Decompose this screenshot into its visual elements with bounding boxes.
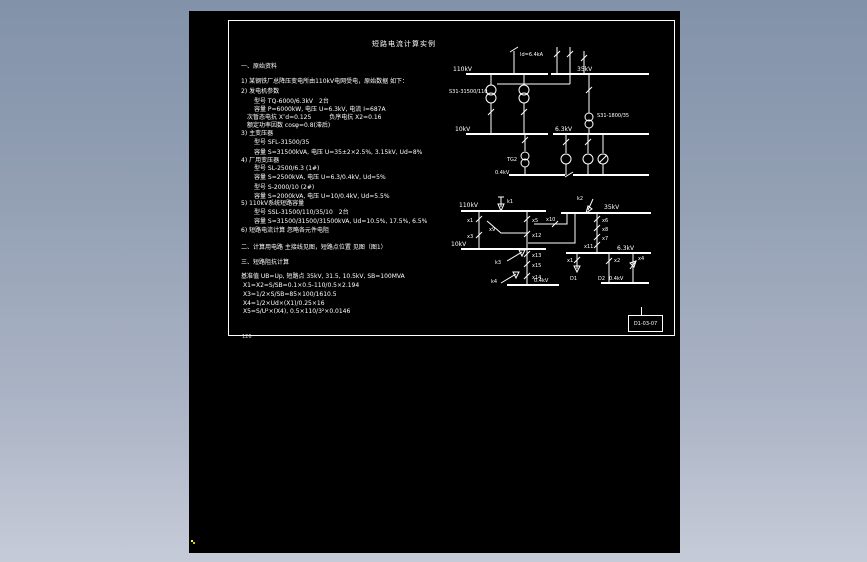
- label-bus-6kv: 6.3kV: [617, 245, 635, 252]
- label-x7: x7: [602, 236, 608, 242]
- spec-text-line: 容量 S=2500kVA, 电压 U=6.3/0.4kV, Ud=5%: [254, 174, 386, 181]
- label-bus-04kv-right: 0.4kV: [609, 276, 624, 282]
- label-bus-35kv: 35kV: [604, 204, 620, 211]
- label-main-transformer: S31-31500/110: [449, 89, 487, 95]
- label-x9: x9: [489, 227, 495, 233]
- label-bus-35kv: 35kV: [577, 66, 593, 73]
- spec-text-line: 型号 SSL-31500/110/35/10 2台: [254, 209, 349, 216]
- label-x1: x1: [467, 218, 473, 224]
- spec-text-line: 容量 S=2000kVA, 电压 U=10/0.4kV, Ud=5.5%: [254, 193, 390, 200]
- label-xb4: x4: [638, 256, 644, 262]
- label-bus-6kv: 6.3kV: [555, 126, 573, 133]
- spec-text-line: 型号 SFL-31500/35: [254, 139, 309, 146]
- label-k2: k2: [577, 196, 583, 202]
- spec-text-line: 容量 P=6000kW, 电压 U=6.3kV, 电流 I=687A: [254, 106, 386, 113]
- ucs-marker-icon: [193, 542, 195, 544]
- label-k1: k1: [507, 199, 513, 205]
- label-aux-transformer: S31-1800/35: [597, 113, 629, 119]
- spec-text-line: 4) 厂用变压器: [241, 157, 279, 164]
- label-bus-10kv: 10kV: [455, 126, 471, 133]
- single-line-diagram: Id=6.4kA 110kV 35kV 10kV 6.3kV 0.4kV S31…: [447, 43, 673, 203]
- titleblock-divider: [641, 307, 642, 315]
- spec-text-line: 型号 SL-2500/6.3 (1#): [254, 165, 319, 172]
- label-x12: x12: [532, 233, 541, 239]
- label-source-current: Id=6.4kA: [520, 52, 544, 58]
- cad-drawing-canvas[interactable]: 短路电流计算实例 一、原始资料1) 某钢铁厂总降压变电所由110kV电网受电，原…: [189, 11, 680, 553]
- spec-text-line: 三、短路阻抗计算: [241, 259, 289, 266]
- spec-text-line: X4=1/2×Ud×(X1)/0.25×16: [243, 300, 325, 307]
- label-bus-110kv: 110kV: [453, 66, 473, 73]
- label-x5: x5: [532, 218, 538, 224]
- spec-text-line: X1=X2=S/SB=0.1×0.5-110/0.5×2.194: [243, 282, 359, 289]
- spec-text-line: X3=1/2×S/SB=85×100/1610.5: [243, 291, 337, 298]
- label-bus-04kv: 0.4kV: [495, 170, 510, 176]
- spec-text-line: 型号 TQ-6000/6.3kV 2台: [254, 98, 329, 105]
- label-x6: x6: [602, 218, 608, 224]
- label-x15: x15: [532, 263, 541, 269]
- label-tg2: TG2: [506, 157, 517, 163]
- spec-text-line: 2) 发电机参数: [241, 88, 279, 95]
- label-bus-10kv: 10kV: [451, 241, 467, 248]
- label-bus-110kv: 110kV: [459, 202, 479, 209]
- spec-text-line: 二、计算用电路 主接线见图，短路点位置 见图（图1）: [241, 244, 387, 251]
- label-d1: D1: [570, 276, 577, 282]
- label-x8: x8: [602, 227, 608, 233]
- label-k3: k3: [495, 260, 501, 266]
- spec-text-line: 5) 110kV系统短路容量: [241, 200, 304, 207]
- label-k4: k4: [491, 279, 497, 285]
- spec-text-line: 额定功率因数 cosφ=0.8(滞后): [247, 122, 330, 129]
- label-d2: D2: [598, 276, 605, 282]
- spec-text-line: 次暂态电抗 X″d=0.125 负序电抗 X2=0.16: [247, 114, 382, 121]
- spec-text-line: 1) 某钢铁厂总降压变电所由110kV电网受电，原始数据 如下：: [241, 78, 408, 85]
- spec-text-line: 容量 S=31500kVA, 电压 U=35±2×2.5%, 3.15kV, U…: [254, 149, 422, 156]
- spec-text-line: 3) 主变压器: [241, 130, 273, 137]
- spec-text-line: X5=S/U²×(X4), 0.5×110/3²×0.0146: [243, 308, 350, 315]
- spec-text-line: 型号 S-2000/10 (2#): [254, 184, 314, 191]
- label-xb1: x1: [567, 258, 573, 264]
- spec-text-line: 容量 S=31500/31500/31500kVA, Ud=10.5%, 17.…: [254, 218, 427, 225]
- spec-text-line: 一、原始资料: [241, 63, 277, 70]
- spec-text-line: 6) 短路电流计算 忽略各元件电阻: [241, 227, 329, 234]
- spec-text-line: 基准值 UB=Up, 短路点 35kV, 31.5, 10.5kV, SB=10…: [241, 273, 405, 280]
- label-x13: x13: [532, 253, 541, 259]
- titleblock-drawing-code: D1-03-07: [628, 315, 663, 332]
- impedance-diagram: 110kV 35kV 10kV 6.3kV 0.4kV 0.4kV k1 k2 …: [449, 191, 664, 313]
- label-x14: x14: [532, 275, 541, 281]
- desktop: { "colors": { "desktop_top": "#8292a9", …: [0, 0, 867, 562]
- label-x11: x11: [584, 244, 593, 250]
- label-x3: x3: [467, 234, 473, 240]
- label-xb2: x2: [614, 258, 620, 264]
- drawing-sheet-frame: 短路电流计算实例 一、原始资料1) 某钢铁厂总降压变电所由110kV电网受电，原…: [228, 20, 675, 336]
- label-x10: x10: [546, 217, 555, 223]
- page-number: 126: [242, 334, 252, 340]
